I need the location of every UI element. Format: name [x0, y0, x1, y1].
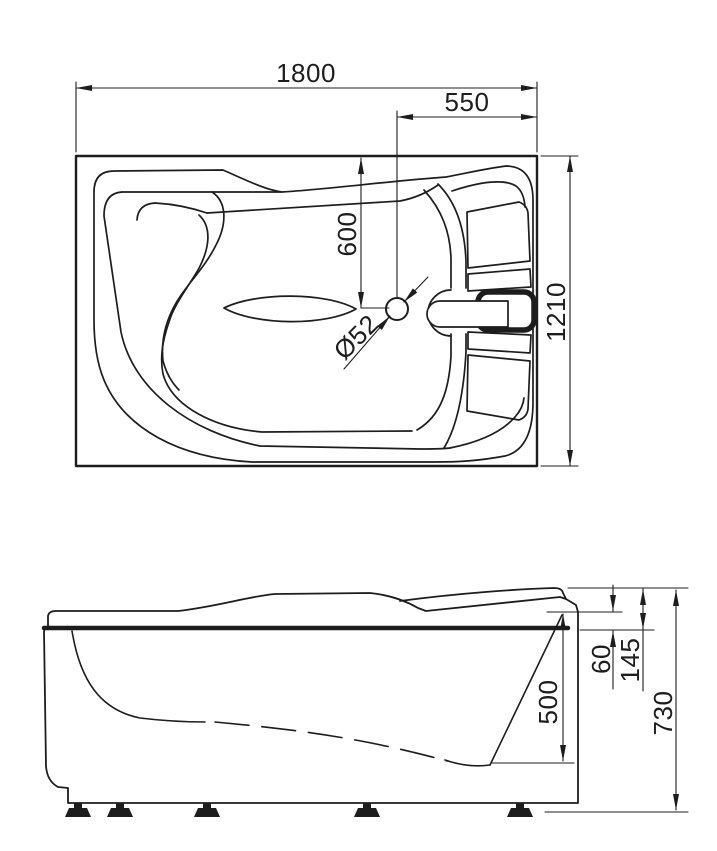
handle-bar: [427, 301, 508, 327]
side-view-labels: 500 60 145 730: [533, 638, 678, 736]
interior-bottom-low: [445, 760, 490, 766]
backrest-slat-2: [468, 269, 531, 291]
basin-arc-lower: [417, 334, 451, 430]
top-view: 1800 550 600 1210 Ø52: [76, 58, 578, 466]
dim-label-500: 500: [533, 680, 563, 725]
foot-2: [107, 803, 133, 817]
bathtub-technical-drawing: 1800 550 600 1210 Ø52: [0, 0, 717, 851]
inner-wall-s-curve: [163, 192, 224, 390]
dim-label-730: 730: [648, 691, 678, 736]
backrest-slat-3: [468, 332, 531, 353]
dim-label-550: 550: [445, 87, 490, 117]
top-view-dimensions: [76, 82, 578, 466]
side-outer-profile: [44, 593, 578, 803]
feet: [65, 803, 533, 817]
corner-band-bottom: [450, 398, 524, 448]
foot-3: [194, 803, 220, 817]
side-view: 500 60 145 730: [44, 585, 688, 817]
drawing-svg: 1800 550 600 1210 Ø52: [0, 0, 717, 851]
interior-bottom-hidden: [215, 722, 447, 761]
backrest-arc-outer-lower: [444, 334, 466, 448]
backrest-arc-outer-upper: [438, 184, 466, 288]
interior-front-wall: [72, 631, 205, 722]
waterline-almond: [224, 296, 356, 322]
dim-label-1800: 1800: [276, 58, 336, 88]
foot-5: [507, 803, 533, 817]
foot-4: [354, 803, 380, 817]
dim-label-60: 60: [586, 644, 616, 674]
foot-1: [65, 803, 91, 817]
dim-label-1210: 1210: [541, 282, 571, 342]
dim-label-145: 145: [615, 638, 645, 683]
leader-drain-upper: [404, 277, 428, 302]
basin-arc-upper: [424, 190, 451, 288]
dim-label-600: 600: [332, 212, 362, 257]
backrest-slat-1: [467, 202, 530, 268]
basin-corner: [137, 203, 207, 220]
